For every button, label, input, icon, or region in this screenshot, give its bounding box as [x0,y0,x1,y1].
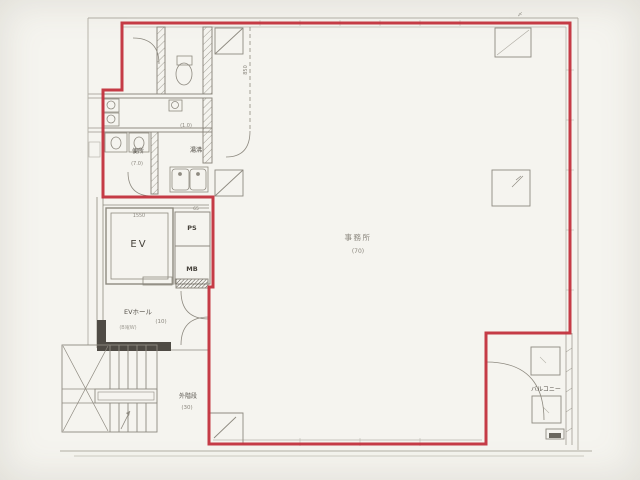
outer-staircase [62,345,157,432]
toilet-label: 便所 [132,147,144,155]
stair-landing-diagonals [63,346,108,431]
ps-label: PS [187,224,197,232]
dim-1550: 1550 [133,213,145,219]
service-core-walls [97,27,212,350]
balcony-label: バルコニー [531,386,561,393]
toilet-bowl-icon [111,137,121,149]
basin-icon [172,102,179,109]
mb-door-hatch [176,279,208,288]
office-entry-door-arc [226,131,250,157]
corner-step [209,413,243,444]
dimension-labels: 1550 65 850 〆 [133,12,523,219]
dim-65: 65 [193,206,199,212]
window-tick-marks [260,20,574,446]
toilet-area-label: (7.0) [131,161,143,167]
basin-icon [107,115,115,123]
office-label: 事務所 [345,232,372,242]
building-outer-border [60,18,592,456]
ev-hall-label: EVホール [124,308,153,316]
ev-label: EV [130,239,147,250]
ev-hall-note: (B電W) [119,325,136,331]
small-room-area-label: (1.0) [180,123,192,129]
floor-plan: 事務所 (70) EV PS MB EVホール (10) (B電W) 便所 (7… [0,0,640,480]
basin-icon [107,101,115,109]
office-entry [226,27,250,157]
floor-plan-drawing: 事務所 (70) EV PS MB EVホール (10) (B電W) 便所 (7… [0,0,640,480]
office-area-label: (70) [352,248,364,255]
dim-850: 850 [243,65,249,75]
room-labels: 事務所 (70) EV PS MB EVホール (10) (B電W) 便所 (7… [119,123,561,411]
ac-unit [532,396,561,423]
corner-mark: 〆 [517,12,522,18]
toilet-bowl-icon [176,63,192,85]
ac-unit [531,347,560,375]
kitchenette-sink [170,167,208,192]
stair-treads [110,345,146,389]
ev-hall-area-label: (10) [155,319,166,325]
stair-treads [110,403,146,432]
mb-label: MB [186,265,197,273]
outer-stair-label: 外階段 [179,392,197,400]
outer-stair-area-label: (30) [181,405,192,411]
hot-water-label: 湯沸 [190,146,202,154]
